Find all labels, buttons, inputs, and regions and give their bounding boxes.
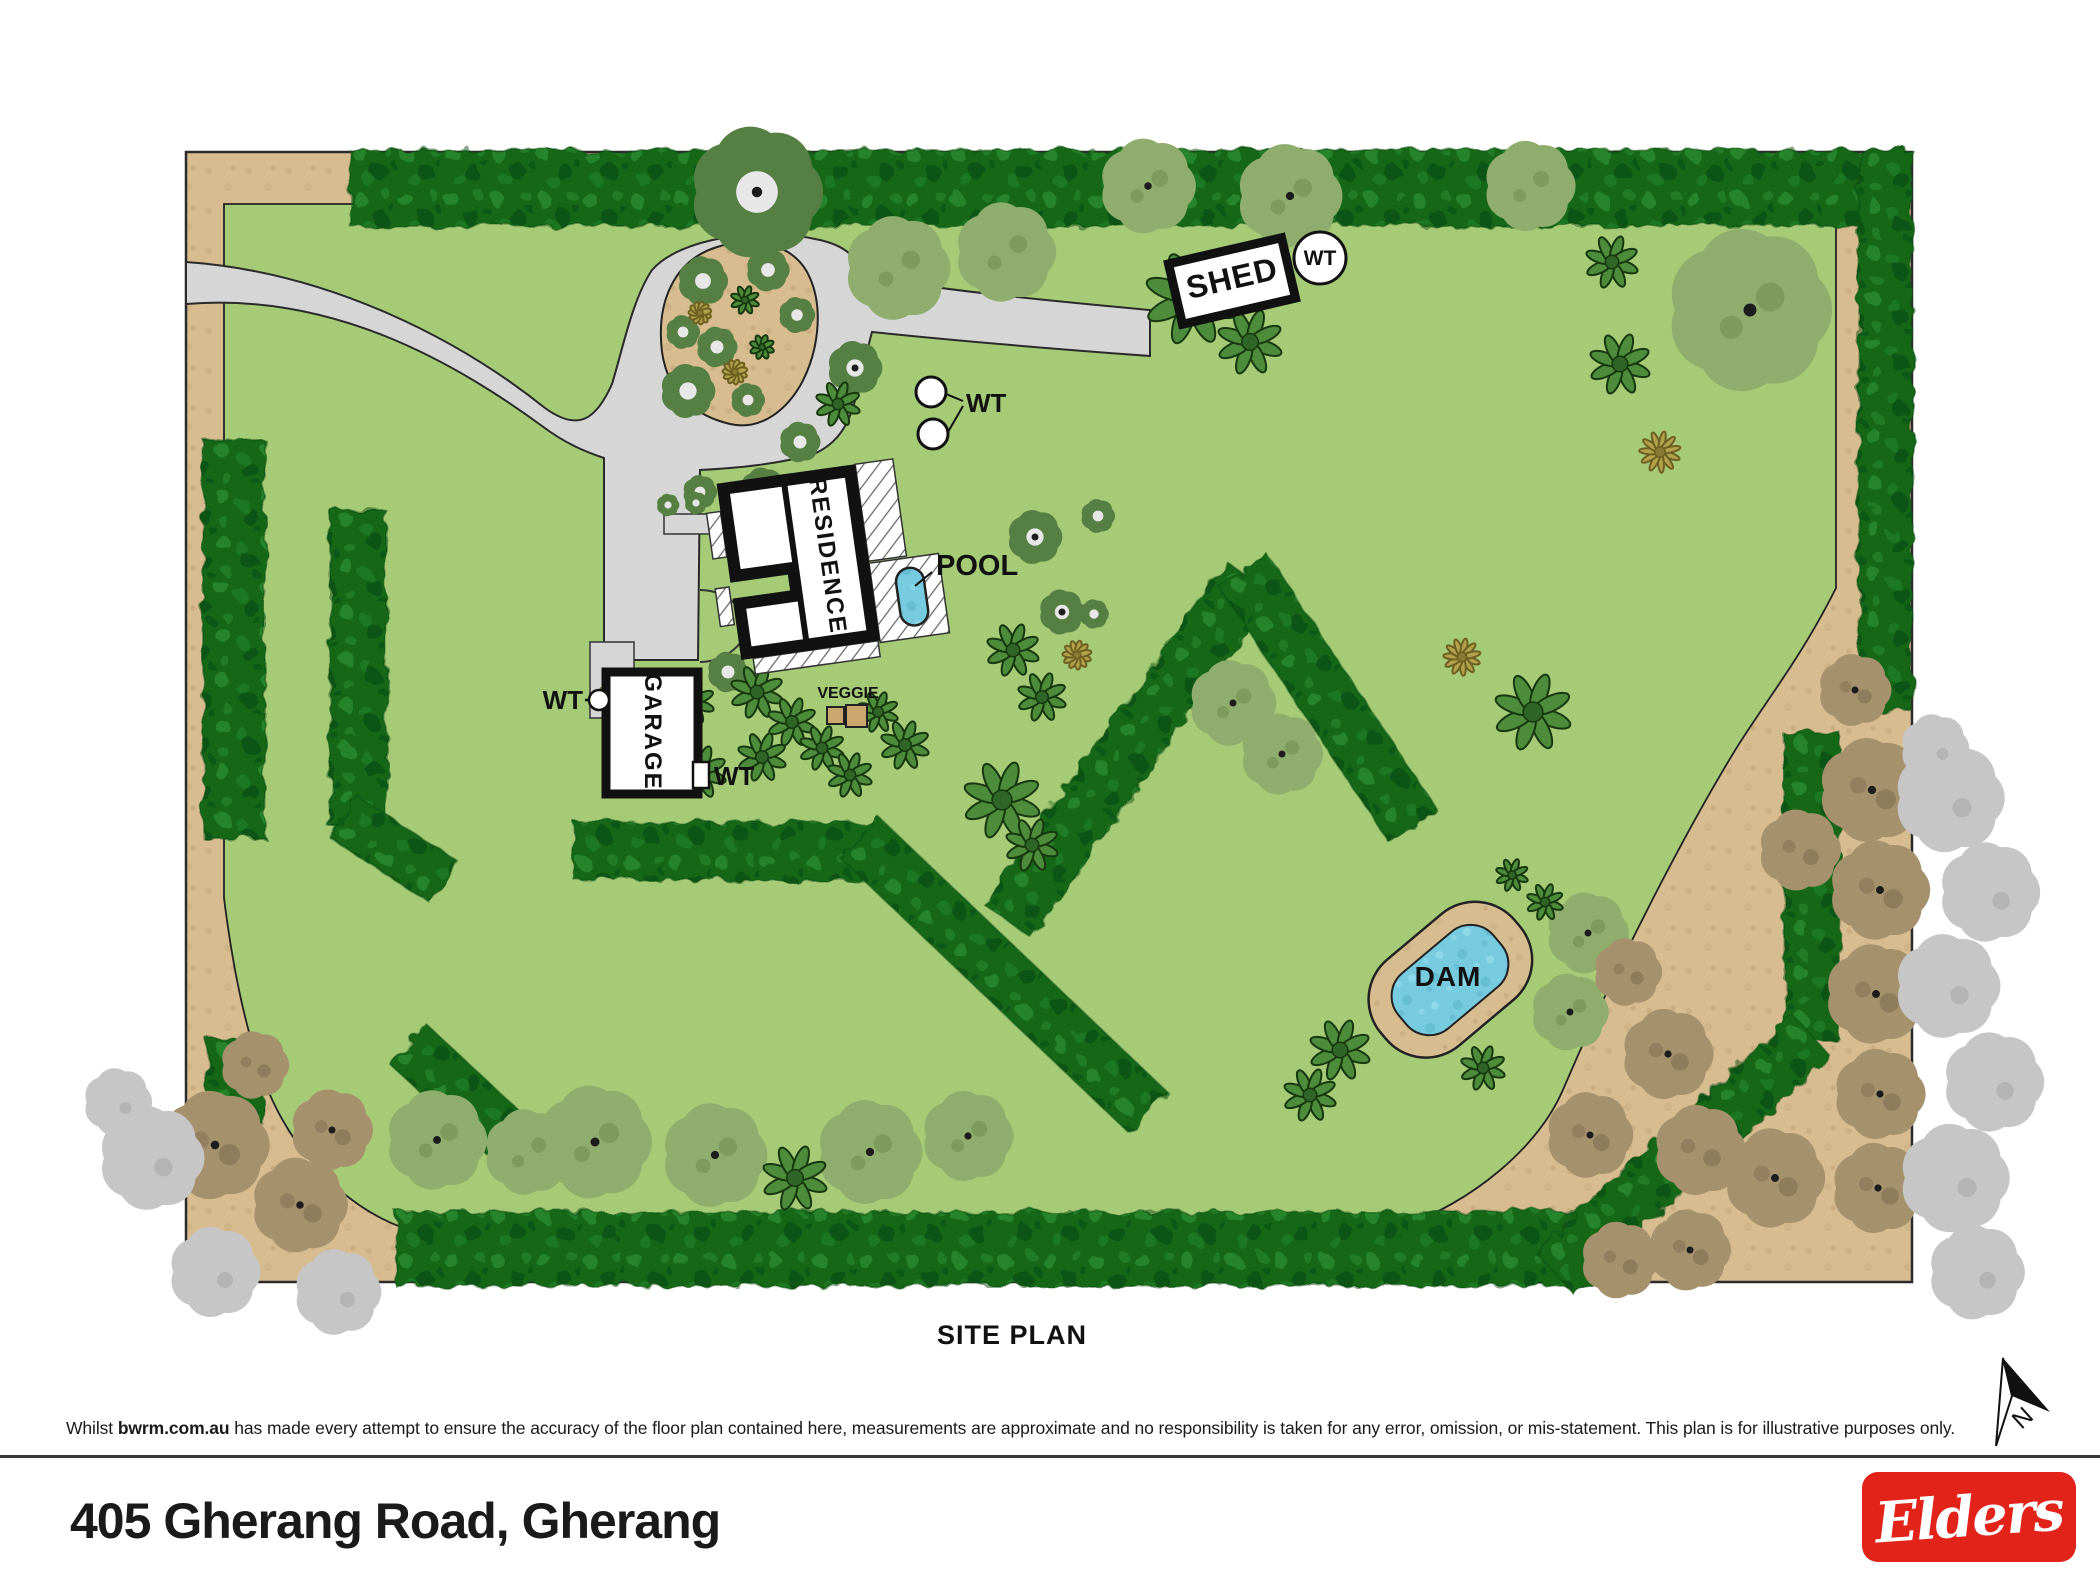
tree-gray [1931,1225,2025,1320]
disclaimer-suffix: has made every attempt to ensure the acc… [230,1418,1955,1438]
site-plan-page: SHED WT WT WT WT RESIDENCE GARAGE POOL V… [0,0,2100,1575]
wt-circle [916,377,946,407]
tree-gray [1946,1032,2044,1131]
hedge-row [396,1212,1640,1286]
disclaimer-prefix: Whilst [66,1418,118,1438]
veggie-label: VEGGIE [800,686,896,702]
tree-gray [1942,842,2040,941]
elders-logo-text: Elders [1873,1478,2065,1557]
wt-circle-garage [589,690,609,710]
garage-label: GARAGE [640,652,664,812]
veggie-patch [827,705,867,727]
dam-label: DAM [1398,963,1498,991]
hedge-row [574,822,878,880]
hedge-row [1858,150,1912,710]
wt-label-garage-left: WT [505,687,583,713]
pool-label: POOL [936,552,1018,581]
wt-label-garage-right: WT [714,763,754,789]
wt-label-shed: WT [1290,248,1350,269]
address-title: 405 Gherang Road, Gherang [70,1496,720,1546]
disclaimer-text: Whilst bwrm.com.au has made every attemp… [66,1420,1955,1438]
hedge-row [330,510,386,828]
elders-logo: Elders [1862,1472,2076,1562]
hedge-row [203,440,265,838]
disclaimer-brand: bwrm.com.au [118,1418,230,1438]
plan-title: SITE PLAN [862,1322,1162,1349]
footer-divider [0,1455,2100,1458]
wt-label-pair: WT [966,390,1006,416]
wt-square-garage [693,762,709,788]
tree-gray [85,1068,152,1136]
tree-gray [1903,1124,2010,1232]
wt-circle [918,419,948,449]
